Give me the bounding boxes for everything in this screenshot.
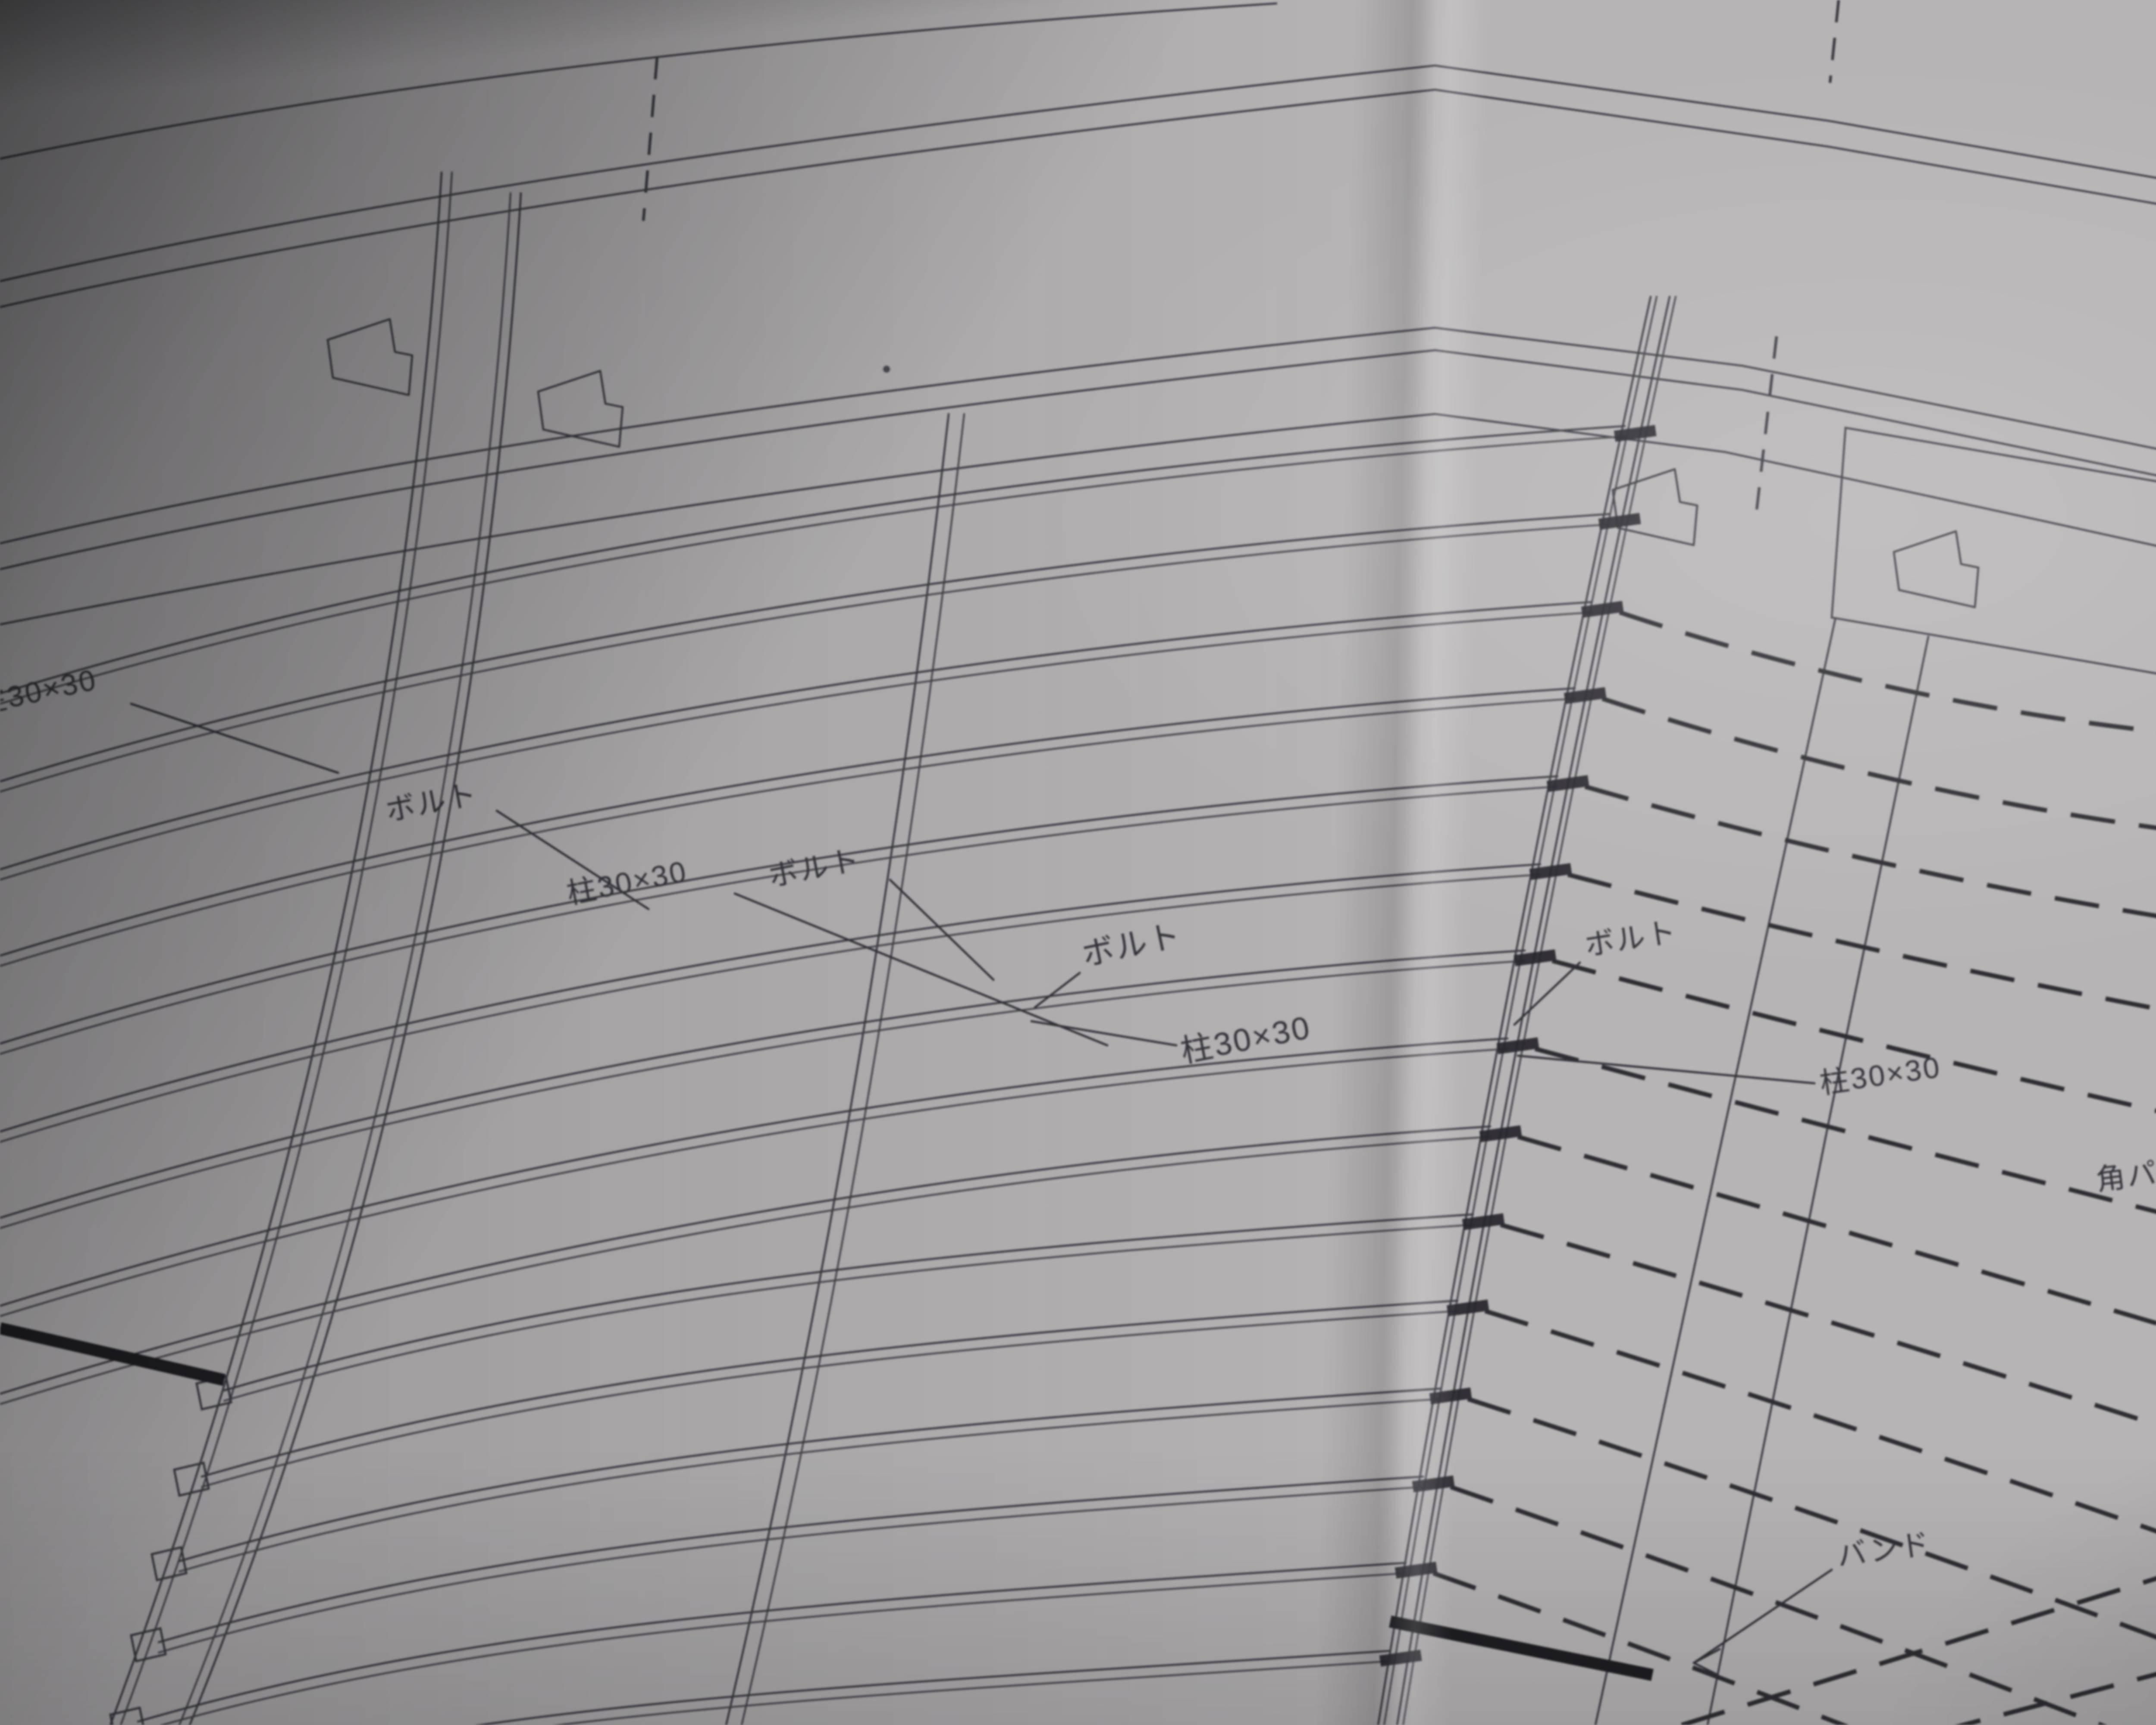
blueprint-drawing: 80 柱30×30 ボルト ボルト 柱30×30 ボルト 柱30×30 ボルト …	[0, 0, 2156, 1725]
label-square-pipe-post-30x30: 角パイプ柱30×30	[2094, 1134, 2156, 1197]
dashed-centerlines	[643, 0, 1839, 517]
paper-speck	[883, 366, 890, 373]
annotation-labels: 柱30×30 ボルト ボルト 柱30×30 ボルト 柱30×30 ボルト 柱30…	[0, 663, 2156, 1572]
label-bolt-right: ボルト	[1583, 915, 1680, 962]
label-bolt-center: ボルト	[1079, 917, 1185, 973]
rails-solid	[0, 426, 1625, 1725]
blueprint-photo: 80 柱30×30 ボルト ボルト 柱30×30 ボルト 柱30×30 ボルト …	[0, 0, 2156, 1725]
post-left	[110, 172, 521, 1725]
label-band: バンド	[1835, 1527, 1934, 1573]
post-bracket-details	[328, 319, 1978, 607]
band-elements	[0, 1328, 1652, 1675]
bolt-marks	[1379, 425, 1657, 1666]
label-post-30x30-right: 柱30×30	[1818, 1051, 1943, 1100]
top-rail-beams-right	[1435, 66, 2156, 562]
label-post-30x30-left: 柱30×30	[0, 663, 100, 720]
rails-dashed	[1433, 612, 2156, 1725]
label-bolt-left: ボルト	[383, 778, 481, 828]
post-center	[1378, 297, 1676, 1725]
label-bolt-mid-left: ボルト	[766, 843, 864, 893]
